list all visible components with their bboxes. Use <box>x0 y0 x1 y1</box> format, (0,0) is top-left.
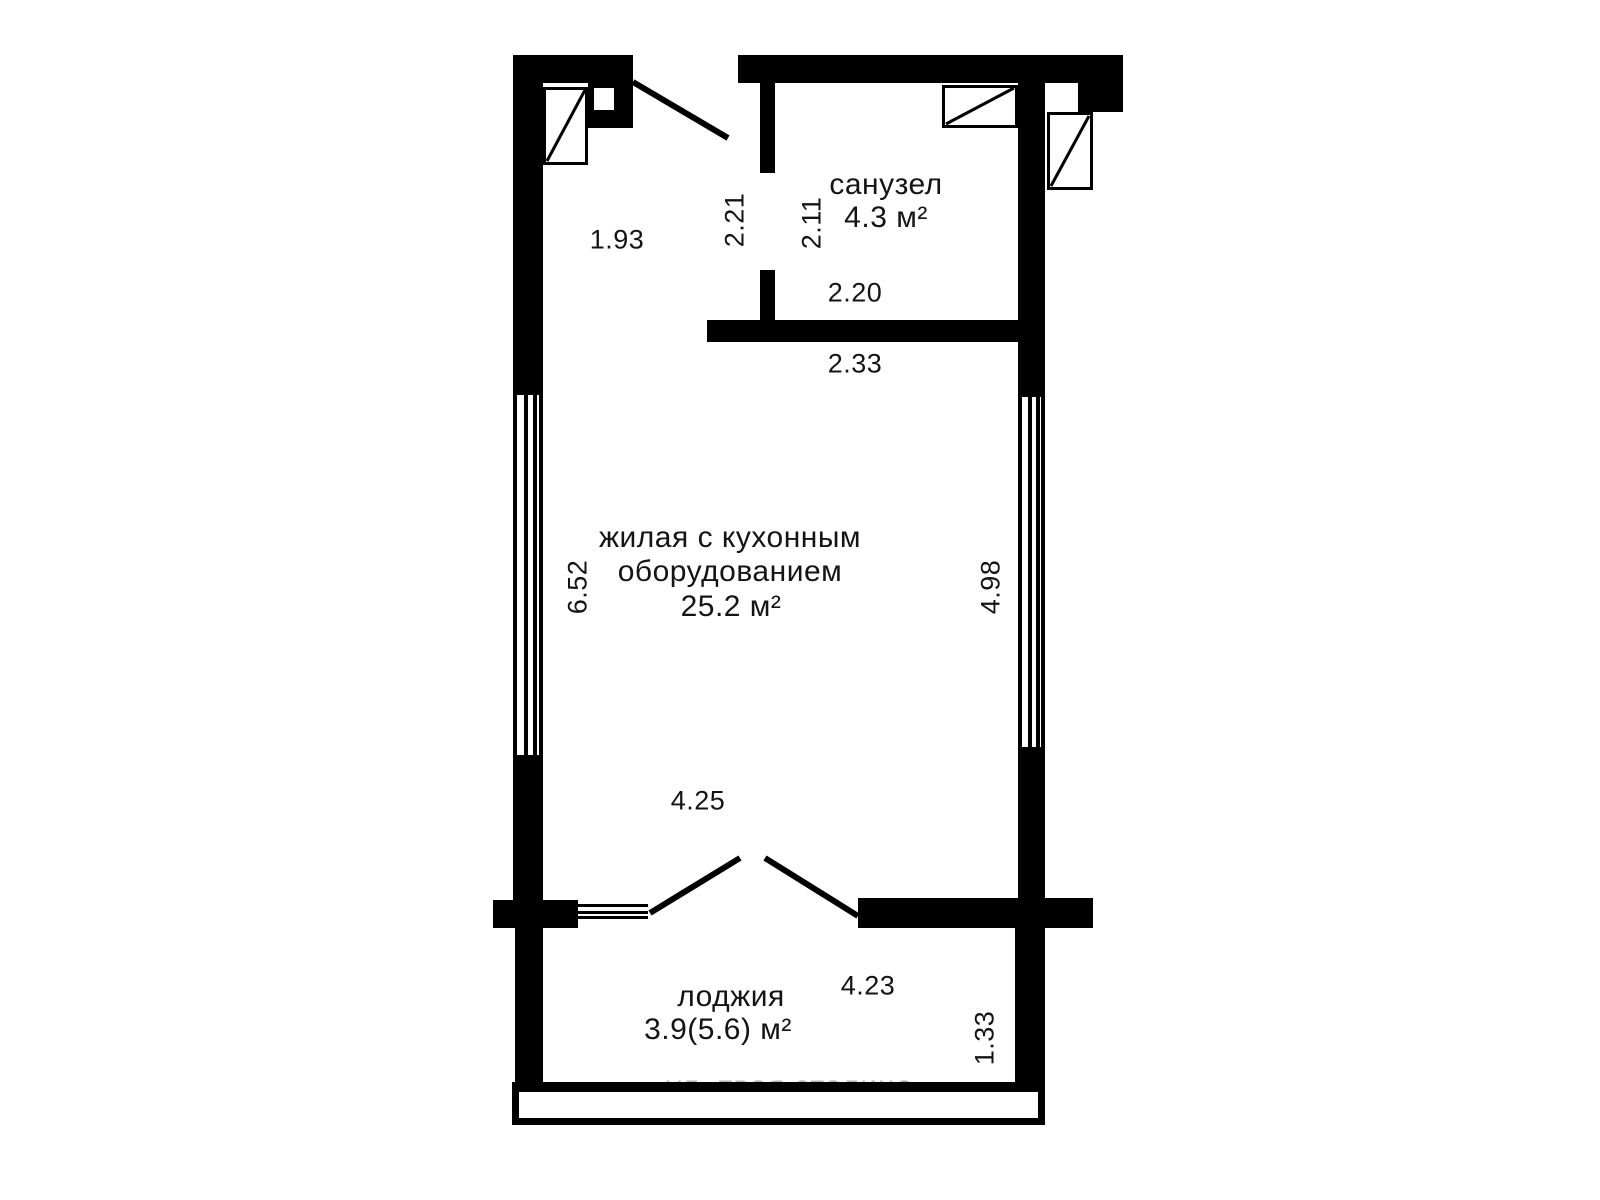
vent-diagonal-entrance <box>547 90 585 161</box>
plan-lines <box>0 0 1600 1200</box>
vent-diagonal-top-right <box>1051 116 1089 186</box>
dim-living-bottom-width: 4.25 <box>671 786 726 817</box>
dim-loggia-width: 4.23 <box>841 971 896 1002</box>
dim-living-left-height: 6.52 <box>563 560 594 615</box>
dim-hall-height: 2.21 <box>720 193 751 248</box>
dim-loggia-height: 1.33 <box>970 1011 1001 1066</box>
room-area-living: 25.2 м² <box>681 590 782 624</box>
wall-notch <box>594 88 614 110</box>
room-name-living-line1: жилая с кухонным <box>599 521 861 555</box>
room-area-bathroom: 4.3 м² <box>844 201 928 235</box>
room-name-living-line2: оборудованием <box>618 555 843 589</box>
dim-living-top-width: 2.33 <box>828 349 883 380</box>
vent-diagonal-bathroom <box>946 88 1014 124</box>
floor-plan: ул. твоя столица <box>0 0 1600 1200</box>
room-name-bathroom: санузел <box>829 168 942 202</box>
dim-living-right-height: 4.98 <box>976 560 1007 615</box>
dim-bathroom-height: 2.11 <box>797 197 828 250</box>
dim-hall-width: 1.93 <box>590 225 645 256</box>
room-area-loggia: 3.9(5.6) м² <box>644 1013 792 1047</box>
dim-bathroom-width: 2.20 <box>828 278 883 309</box>
door-swing-loggia-right <box>765 858 858 916</box>
door-swing-loggia-left <box>650 858 740 913</box>
door-swing-entrance <box>633 82 728 138</box>
room-name-loggia: лоджия <box>677 980 784 1014</box>
